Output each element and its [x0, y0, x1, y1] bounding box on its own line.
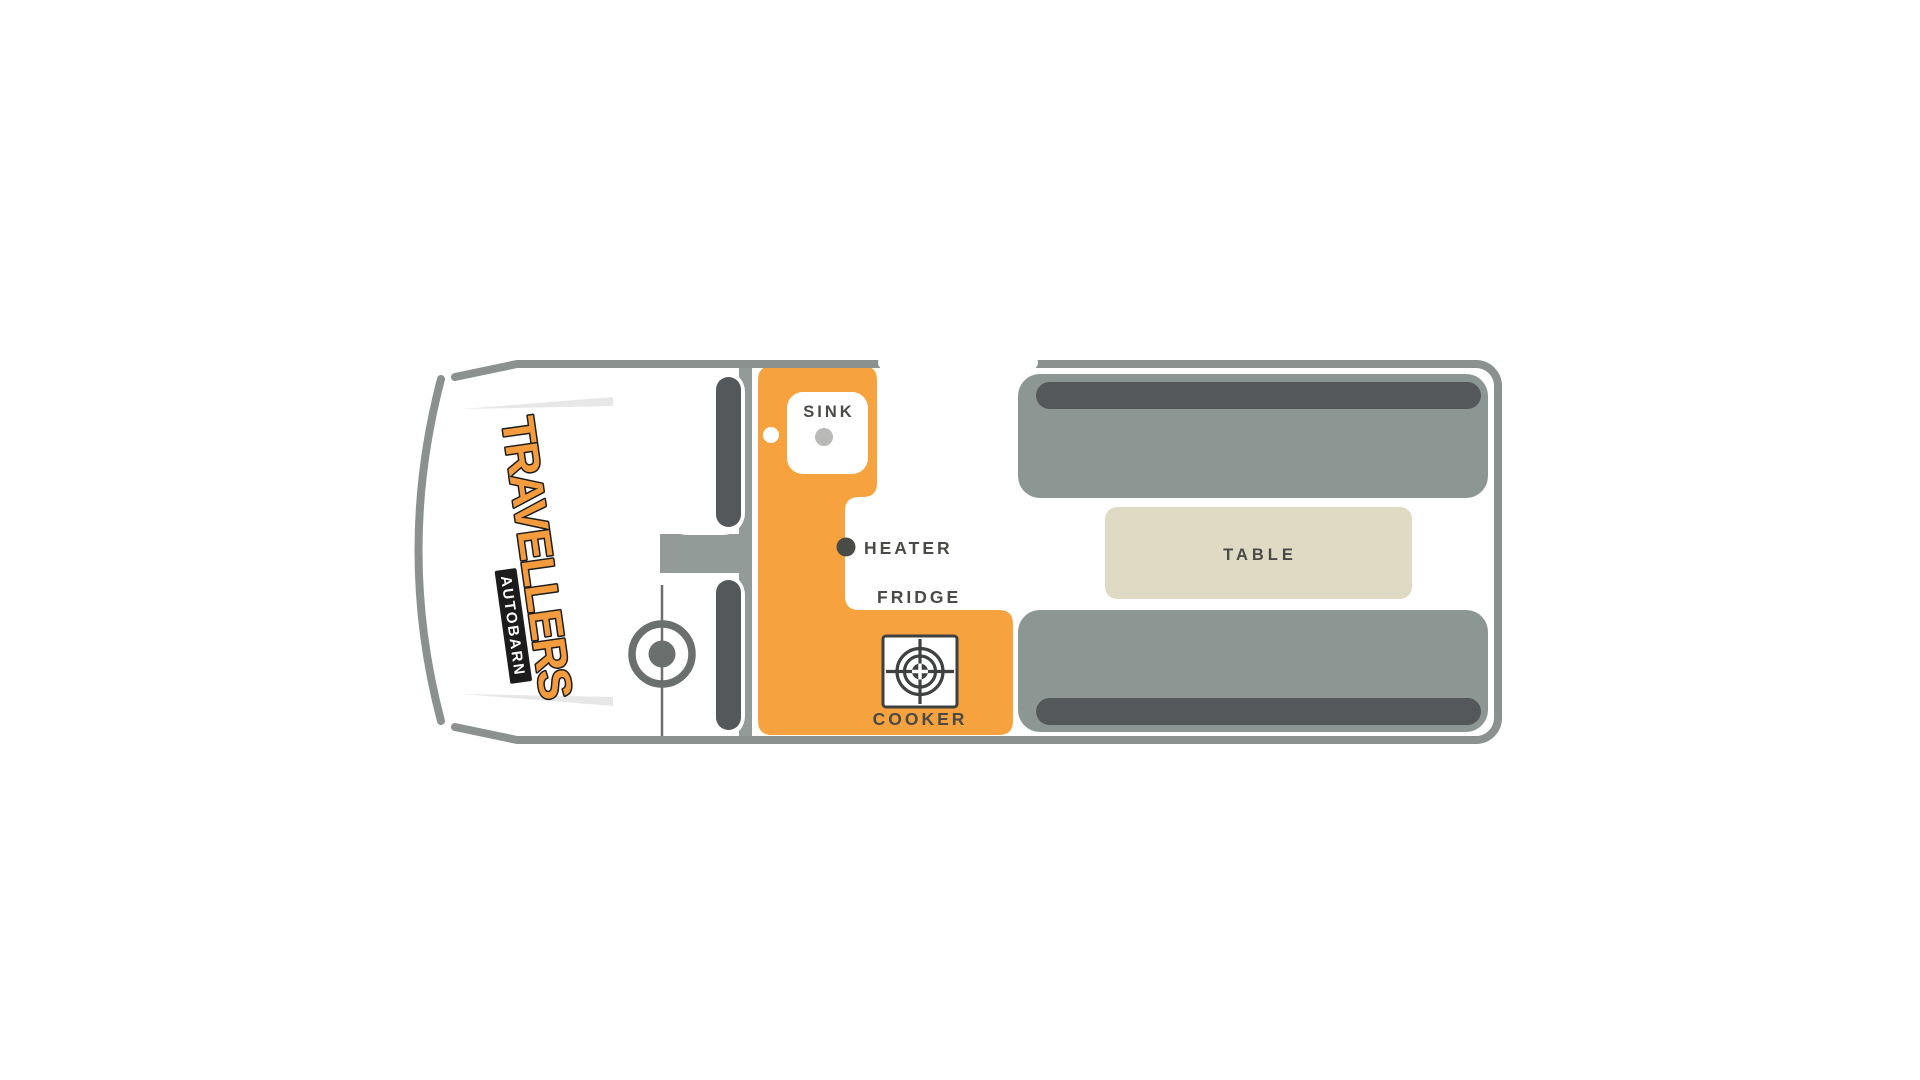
campervan-floorplan-page: TRAVELLERS AUTOBARN SINK HEATER FRIDGE C… [0, 0, 1920, 1080]
table-label: TABLE [1223, 546, 1297, 564]
cab-seat-gap [660, 534, 752, 573]
bench-seat-bottom-backrest [1036, 698, 1481, 725]
sliding-door-gap [878, 355, 1038, 370]
driver-seat-cushion [716, 580, 741, 730]
sink-tap-icon [763, 427, 779, 443]
sink-label: SINK [803, 403, 854, 421]
passenger-seat-cushion [716, 377, 741, 527]
heater-label: HEATER [864, 538, 953, 558]
heater-dot-icon [837, 538, 856, 557]
fridge-label: FRIDGE [877, 587, 961, 607]
campervan-floorplan-diagram: TRAVELLERS AUTOBARN SINK HEATER FRIDGE C… [0, 0, 1920, 1080]
bench-seat-top-backrest [1036, 382, 1481, 409]
steering-wheel-hub [649, 641, 676, 668]
cooker-label: COOKER [873, 709, 968, 729]
sink-drain-icon [815, 428, 833, 446]
